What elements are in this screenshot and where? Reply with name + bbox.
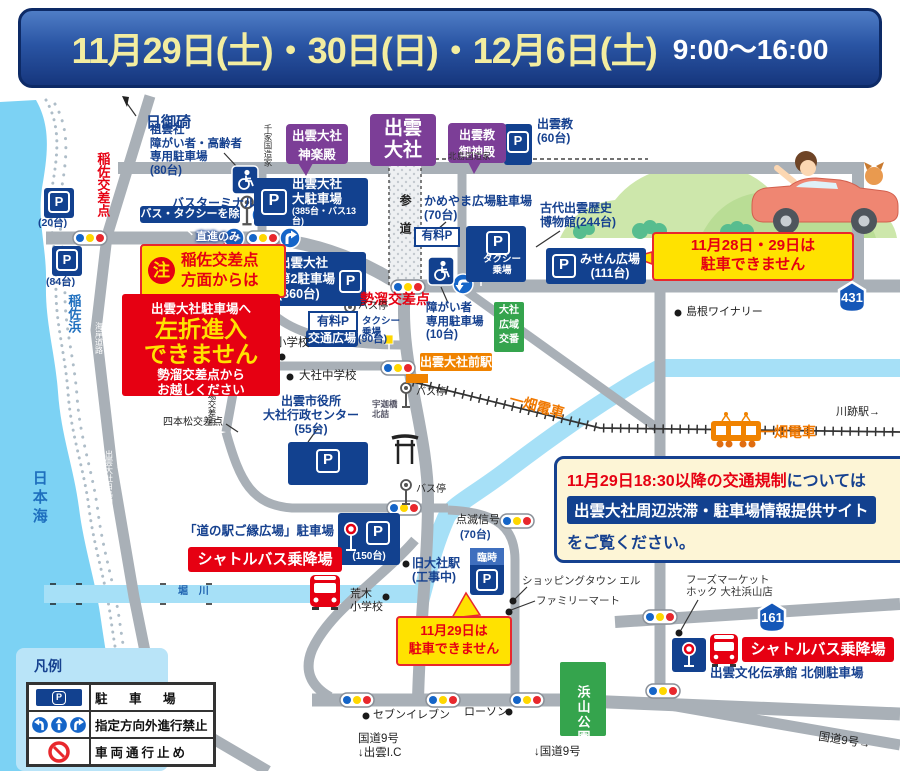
legend-title: 凡例 <box>34 658 62 675</box>
warning-no-left-turn: 出雲大社駐車場へ 左折進入 できません 勢溜交差点から お越しください <box>122 294 280 396</box>
shuttle-bus-icon <box>310 575 340 610</box>
label-taxi-stand2: タクシー 乗場 <box>362 316 400 338</box>
label-straight-only: 直進のみ <box>196 231 240 244</box>
label-junior-high: 大社中学校 <box>299 370 357 384</box>
title-banner: 11月29日(土)・30日(日)・12月6日(土) 9:00〜16:00 <box>18 8 882 88</box>
label-seven-eleven: セブンイレブン <box>373 709 450 722</box>
label-araki-school: 荒木 小学校 <box>350 588 383 614</box>
warning-nopark-2829: 11月28日・29日は 駐車できません <box>652 232 854 281</box>
label-yotsumatsu-crossing: 四本松交差点 <box>163 417 223 429</box>
label-shopping-town: ショッピングタウン エル <box>522 575 640 587</box>
label-senge: 千家国造家 <box>263 124 273 167</box>
label-taxi-stand: タクシー 乗場 <box>480 254 524 277</box>
label-ichibata2: 一畑電車 <box>760 424 816 441</box>
legend-direction-icons <box>28 711 90 738</box>
parking-kameyama-lot: P タクシー 乗場 <box>466 226 526 282</box>
label-bus-stop1: バス停 <box>358 301 388 313</box>
label-inasa-beach: 稲佐浜 <box>66 294 81 333</box>
parking-misen: P みせん広場 (111台) <box>546 248 646 284</box>
train-icon <box>711 412 761 448</box>
label-soun-parking: 祖雲社 障がい者・高齢者 専用駐車場 (80台) <box>150 124 242 178</box>
label-cityhall-parking: 出雲市役所 大社行政センター (55台) <box>246 394 376 436</box>
warning-nopark-29: 11月29日は 駐車できません <box>396 616 512 666</box>
label-r9-ic: 国道9号 ↓出雲I.C <box>358 733 401 760</box>
legend-closed-label: 車両通行止め <box>90 738 214 765</box>
label-coast-road: 海岸道路 <box>94 322 103 354</box>
label-winery: 島根ワイナリー <box>686 306 763 319</box>
label-shiratori-line: 出雲大社白鳥線 <box>104 450 113 506</box>
label-p84: (84台) <box>46 276 75 288</box>
label-denshokan: 出雲文化伝承館 北側駐車場 <box>710 666 863 681</box>
label-familymart: ファミリーマート <box>536 595 620 607</box>
legend-parking-label: 駐 車 場 <box>90 684 214 711</box>
station-platform <box>406 374 428 383</box>
notice-headline: 11月29日18:30以降の交通規制 <box>567 473 787 490</box>
paid-p-box2: 有料P <box>414 227 460 247</box>
paid-p-box1: 有料P <box>308 311 358 332</box>
shuttle-stop-right: シャトルバス乗降場 <box>742 637 894 662</box>
label-lawson: ローソン <box>464 706 508 719</box>
route-161-shield: 161 <box>759 602 785 632</box>
legend-table: P 駐 車 場 指定方向外進行禁止 車両通行止め <box>26 682 216 767</box>
parking-cityhall-box: P <box>288 442 368 485</box>
legend-parking-icon: P <box>28 684 90 711</box>
parking-main-lot: P 出雲大社 大駐車場 (385台・バス13台) <box>254 178 368 226</box>
legend-closed-icon <box>28 738 90 765</box>
route-431-shield: 431 <box>839 282 865 312</box>
parking-gouen-box: P (150台) <box>338 513 400 565</box>
label-gouen-parking: 「道の駅ご縁広場」駐車場 <box>184 524 334 539</box>
shuttle-pole-box <box>672 638 706 672</box>
label-p20: (20台) <box>38 217 67 229</box>
label-bus-terminal: バスターミナル <box>172 196 256 210</box>
traffic-notice-box: 11月29日18:30以降の交通規制については 出雲大社周辺渋滞・駐車場情報提供… <box>554 456 900 563</box>
label-izumokyo: 出雲教 (60台) <box>537 117 573 145</box>
label-museum-parking: 古代出雲歴史 博物館(244台) <box>540 201 616 229</box>
label-old-station: 旧大社駅 (工事中) <box>412 556 460 584</box>
info-site-link[interactable]: 出雲大社周辺渋滞・駐車場情報提供サイト <box>567 496 876 524</box>
main-lot-capacity: (385台・バス13台) <box>292 206 368 227</box>
event-hours: 9:00〜16:00 <box>673 28 829 68</box>
label-bus-stop3: バス停 <box>416 484 446 496</box>
parking-izumokyo-box: P <box>504 124 532 165</box>
svg-text:161: 161 <box>761 610 783 625</box>
izumo-taisha-box: 出雲 大社 <box>370 114 436 166</box>
rinji-tag: 臨時 <box>470 548 504 565</box>
shuttle-stop-left: シャトルバス乗降場 <box>188 547 342 572</box>
parking-second-lot: 出雲大社 第2駐車場 (360台) P <box>272 252 366 306</box>
chui-badge: 注 <box>148 257 175 284</box>
station-box: 出雲大社前駅 <box>420 353 492 371</box>
hamayama-park-box: 浜山公園 <box>560 662 606 736</box>
label-p150: (150台) <box>338 547 400 562</box>
label-disabled-parking: 障がい者 専用駐車場 (10台) <box>426 302 484 343</box>
label-kitajima: 北島国造家 <box>448 151 491 161</box>
kotsu-hiroba-box: 交通広場 <box>306 330 358 347</box>
torii-icon <box>392 436 418 464</box>
kaguraden-box: 出雲大社 神楽殿 <box>286 124 348 164</box>
legend-direction-label: 指定方向外進行禁止 <box>90 711 214 738</box>
label-horikawa-river: 堀 川 <box>178 586 213 598</box>
label-sea-of-japan: 日本海 <box>30 470 48 527</box>
label-bus-stop2: バス停 <box>416 387 446 399</box>
parking-box-84: P <box>52 246 82 276</box>
shuttle-pole-icon <box>679 640 699 670</box>
main-lot-name: 出雲大社 大駐車場 <box>292 177 342 205</box>
label-p70: (70台) <box>460 529 491 542</box>
event-dates: 11月29日(土)・30日(日)・12月6日(土) <box>72 22 657 74</box>
svg-text:431: 431 <box>841 290 863 305</box>
parking-box-20: P <box>44 188 74 218</box>
label-hoku-market: フーズマーケット ホック 大社浜山店 <box>686 574 773 599</box>
wheelchair-icon <box>428 257 454 285</box>
label-tenmetsu: 点滅信号 <box>456 514 500 527</box>
label-inasa-crossing: 稲佐交差点 <box>95 152 110 217</box>
label-kawato-station: 川跡駅→ <box>836 406 880 419</box>
label-sando: 参道 <box>398 194 412 250</box>
label-kameyama: かめやま広場駐車場 (70台) <box>424 194 532 222</box>
koban-box: 大社 広域 交番 <box>494 302 524 352</box>
parking-rinji-box: 臨時 P <box>470 548 504 595</box>
shuttle-bus-icon <box>710 634 738 667</box>
warning-inasa-note: 注 稲佐交差点 方面からは <box>140 244 286 298</box>
